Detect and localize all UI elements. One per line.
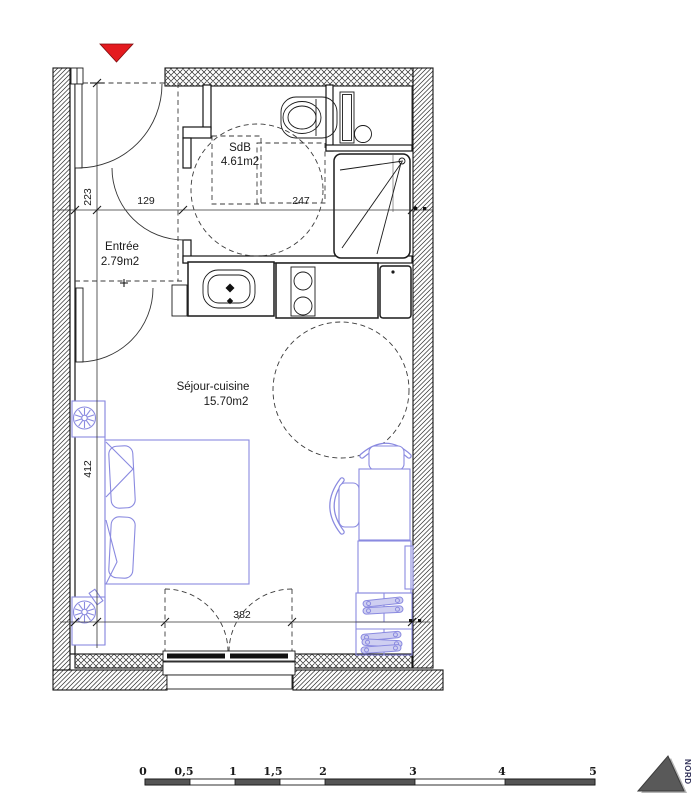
kitchen-sink-unit: [172, 262, 274, 316]
bed-group: [72, 401, 249, 645]
balcony-step: [167, 675, 292, 689]
room-label-entrance: Entrée: [105, 241, 139, 253]
scale-label: 2: [319, 765, 327, 778]
entrance-marker-icon: [100, 44, 133, 62]
washbasin-unit: [333, 86, 412, 145]
chair-seat: [339, 483, 359, 527]
bookshelf: [356, 593, 412, 655]
living-clearance-circle: [273, 322, 409, 458]
room-label-bathroom: SdB: [229, 142, 251, 154]
scale-label: 4: [498, 765, 506, 778]
table: [359, 469, 410, 540]
living-room-door: [76, 288, 153, 362]
dim-window-width: 382: [233, 609, 251, 621]
dim-entrance-width: 129: [137, 195, 155, 207]
dim-living-height: 412: [82, 460, 94, 478]
room-area-bathroom: 4.61m2: [221, 156, 259, 168]
french-window: [163, 589, 295, 689]
north-label: NORD: [683, 759, 692, 785]
scale-bar: 0 0,5 1 1,5 2 3 4 5: [139, 765, 597, 785]
scale-label: 1: [229, 765, 237, 778]
bedside-lamp-icon: [74, 407, 96, 429]
dim-entrance-depth: 223: [82, 188, 94, 206]
entrance-door: [75, 83, 165, 168]
dining-group: [332, 446, 413, 594]
balcony-step: [163, 662, 295, 675]
bathroom-clearance: [191, 124, 325, 256]
dim-bathroom-width: 247: [292, 195, 310, 207]
room-area-living: 15.70m2: [204, 396, 249, 408]
cabinet: [358, 541, 411, 593]
cooktop: [276, 263, 378, 318]
scale-label: 3: [409, 765, 417, 778]
fridge: [380, 266, 411, 318]
shower: [334, 154, 410, 258]
scale-label: 5: [589, 765, 597, 778]
north-compass: NORD: [638, 756, 692, 793]
chair-seat: [369, 446, 404, 470]
scale-label: 0,5: [174, 765, 193, 778]
pillow: [108, 516, 135, 578]
scale-label: 1,5: [263, 765, 282, 778]
room-area-entrance: 2.79m2: [101, 256, 139, 268]
floor-plan-page: SdB 4.61m2 Entrée 2.79m2 Séjour-cuisine …: [0, 0, 693, 800]
scale-label: 0: [139, 765, 147, 778]
floor-plan-drawing: SdB 4.61m2 Entrée 2.79m2 Séjour-cuisine …: [0, 0, 693, 800]
room-label-living: Séjour-cuisine: [177, 381, 250, 393]
pillow: [108, 445, 135, 508]
